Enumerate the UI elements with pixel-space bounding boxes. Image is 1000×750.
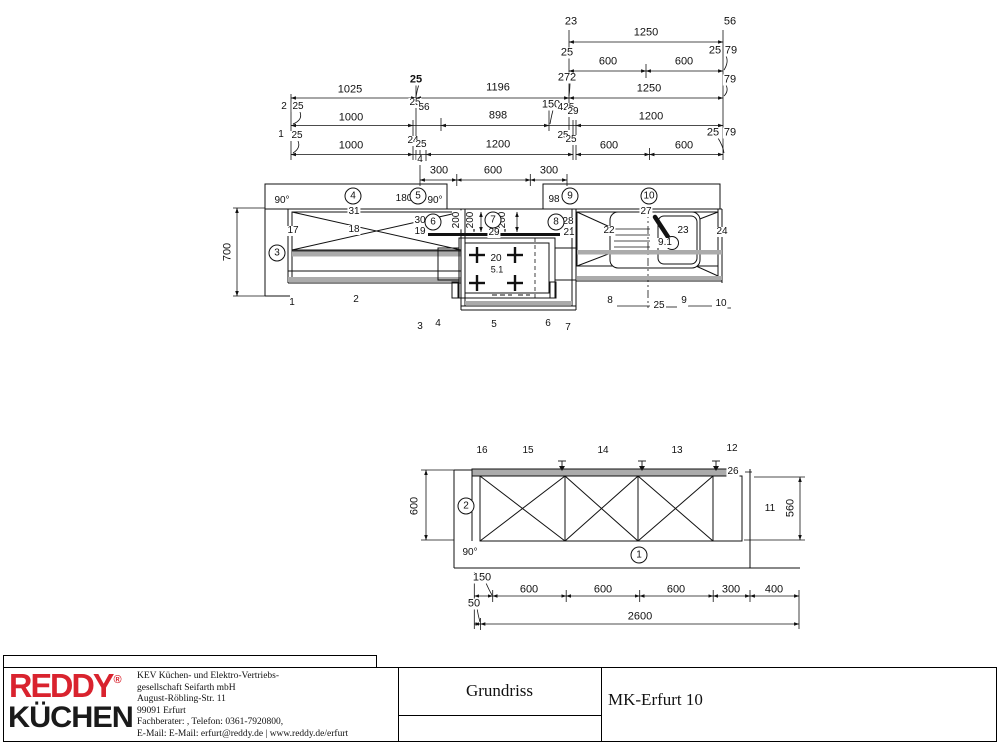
plan-item-label: 10 bbox=[714, 299, 727, 309]
plan-item-label: 29 bbox=[487, 228, 500, 238]
plan-dim-label: 23 bbox=[564, 17, 578, 28]
plan-dim-label: 1000 bbox=[338, 113, 364, 124]
plan-item-label: 17 bbox=[286, 226, 299, 236]
plan-dim-label: 29 bbox=[566, 107, 579, 117]
plan-item-label: 21 bbox=[562, 228, 575, 238]
plan-dim-label: 898 bbox=[488, 111, 508, 122]
plan-item-label: 5 bbox=[490, 320, 498, 330]
plan-dim-label: 79 bbox=[723, 75, 737, 86]
company-info-line: 99091 Erfurt bbox=[137, 706, 395, 718]
plan-item-label: 20 bbox=[489, 254, 502, 264]
plan-dim-label: 600 bbox=[674, 141, 694, 152]
plan-position-circle: 3 bbox=[269, 245, 286, 262]
plan-dim-label: 600 bbox=[598, 57, 618, 68]
elevation-position-circle: 2 bbox=[458, 498, 475, 515]
plan-dim-label: 25 bbox=[290, 131, 303, 141]
elevation-item-label: 26 bbox=[726, 467, 739, 477]
plan-position-circle: 9 bbox=[562, 188, 579, 205]
plan-item-label: 24 bbox=[715, 227, 728, 237]
title-block-divider-2 bbox=[601, 667, 602, 742]
plan-item-label: 4 bbox=[434, 319, 442, 329]
plan-dim-label: 2 bbox=[280, 102, 288, 112]
plan-dim-label: 25 bbox=[414, 140, 427, 150]
plan-dim-label: 56 bbox=[723, 17, 737, 28]
elevation-item-label: 14 bbox=[596, 446, 609, 456]
plan-item-label: 6 bbox=[544, 319, 552, 329]
plan-dim-label: 300 bbox=[429, 166, 449, 177]
elevation-item-label: 90° bbox=[461, 548, 478, 558]
plan-item-label: 90° bbox=[273, 196, 290, 206]
plan-dim-label: 25 bbox=[564, 135, 577, 145]
title-block-cell-divider bbox=[398, 715, 601, 716]
plan-dim-label: 79 bbox=[723, 128, 737, 139]
drawing-sheet: 2356125025257960060027279125025102511962… bbox=[0, 0, 1000, 750]
plan-dim-label: 200 bbox=[466, 211, 476, 230]
plan-dim-label: 56 bbox=[417, 103, 430, 113]
plan-position-circle: 8 bbox=[548, 214, 565, 231]
plan-item-label: 9.1 bbox=[657, 238, 673, 248]
plan-position-circle: 7 bbox=[485, 212, 502, 229]
plan-dim-label: 300 bbox=[539, 166, 559, 177]
elevation-dim-label: 600 bbox=[666, 585, 686, 596]
plan-dim-label: 25 bbox=[560, 48, 574, 59]
logo-kuechen-text: KÜCHEN bbox=[8, 703, 136, 733]
plan-dim-label: 79 bbox=[724, 46, 738, 57]
plan-dim-label: 600 bbox=[674, 57, 694, 68]
plan-dim-label: 4 bbox=[416, 155, 424, 165]
plan-item-label: 25 bbox=[652, 301, 665, 311]
plan-item-label: 1 bbox=[288, 298, 296, 308]
plan-dim-label: 1200 bbox=[638, 112, 664, 123]
elevation-dim-label: 50 bbox=[467, 599, 481, 610]
plan-item-label: 2 bbox=[352, 295, 360, 305]
company-info-line: gesellschaft Seifarth mbH bbox=[137, 683, 395, 695]
plan-dim-label: 700 bbox=[223, 242, 234, 262]
plan-dim-label: 1250 bbox=[633, 28, 659, 39]
elevation-dim-label: 600 bbox=[519, 585, 539, 596]
plan-position-circle: 6 bbox=[425, 214, 442, 231]
plan-dim-label: 1 bbox=[277, 130, 285, 140]
plan-item-label: 98 bbox=[547, 195, 560, 205]
company-address-block: KEV Küchen- und Elektro-Vertriebs-gesell… bbox=[137, 671, 395, 741]
plan-dim-label: 25 bbox=[409, 75, 423, 86]
elevation-dim-label: 2600 bbox=[627, 612, 653, 623]
elevation-item-label: 15 bbox=[521, 446, 534, 456]
plan-dim-label: 25 bbox=[708, 46, 722, 57]
logo-reddy-text: REDDY bbox=[9, 669, 112, 702]
plan-item-label: 7 bbox=[564, 323, 572, 333]
plan-item-label: 23 bbox=[676, 226, 689, 236]
plan-dim-label: 272 bbox=[557, 73, 577, 84]
plan-item-label: 5.1 bbox=[490, 266, 505, 275]
plan-dim-label: 600 bbox=[483, 166, 503, 177]
company-info-line: August-Röbling-Str. 11 bbox=[137, 694, 395, 706]
company-info-line: Fachberater: , Telefon: 0361-7920800, bbox=[137, 717, 395, 729]
plan-item-label: 90° bbox=[426, 196, 443, 206]
plan-item-label: 27 bbox=[639, 207, 652, 217]
plan-item-label: 9 bbox=[680, 296, 688, 306]
plan-item-label: 19 bbox=[413, 227, 426, 237]
elevation-item-label: 11 bbox=[764, 504, 776, 514]
elevation-dim-label: 150 bbox=[472, 573, 492, 584]
plan-position-circle: 10 bbox=[641, 188, 658, 205]
plan-item-label: 18 bbox=[347, 225, 360, 235]
drawing-type-title: Grundriss bbox=[398, 667, 601, 715]
plan-name-title: MK-Erfurt 10 bbox=[608, 690, 703, 710]
elevation-item-label: 16 bbox=[475, 446, 488, 456]
elevation-dim-label: 400 bbox=[764, 585, 784, 596]
logo-registered-mark: ® bbox=[114, 674, 122, 686]
plan-position-circle: 5 bbox=[410, 188, 427, 205]
elevation-dim-label: 300 bbox=[721, 585, 741, 596]
reddy-kuechen-logo: REDDY® KÜCHEN bbox=[8, 669, 133, 733]
company-info-line: KEV Küchen- und Elektro-Vertriebs- bbox=[137, 671, 395, 683]
plan-dim-label: 1200 bbox=[485, 140, 511, 151]
plan-position-circle: 4 bbox=[345, 188, 362, 205]
plan-item-label: 31 bbox=[347, 207, 360, 217]
plan-dim-label: 1025 bbox=[337, 85, 363, 96]
plan-dim-label: 200 bbox=[452, 211, 462, 230]
plan-item-label: 22 bbox=[602, 226, 615, 236]
plan-counter-right-sink bbox=[576, 209, 731, 308]
plan-dim-label: 1000 bbox=[338, 141, 364, 152]
company-info-line: E-Mail: E-Mail: erfurt@reddy.de | www.re… bbox=[137, 729, 395, 741]
plan-dim-label: 600 bbox=[599, 141, 619, 152]
elevation-item-label: 13 bbox=[670, 446, 683, 456]
plan-dim-label: 25 bbox=[291, 102, 304, 112]
plan-item-label: 8 bbox=[606, 296, 614, 306]
elevation-dim-label: 560 bbox=[786, 498, 797, 518]
elevation-dim-label: 600 bbox=[410, 496, 421, 516]
elevation-cabinets bbox=[454, 461, 800, 568]
plan-dim-label: 25 bbox=[706, 128, 720, 139]
plan-dim-label: 1250 bbox=[636, 84, 662, 95]
elevation-position-circle: 1 bbox=[631, 547, 648, 564]
elevation-item-label: 12 bbox=[725, 444, 738, 454]
elevation-dim-label: 600 bbox=[593, 585, 613, 596]
plan-item-label: 3 bbox=[416, 322, 424, 332]
plan-dim-label: 1196 bbox=[485, 83, 511, 94]
